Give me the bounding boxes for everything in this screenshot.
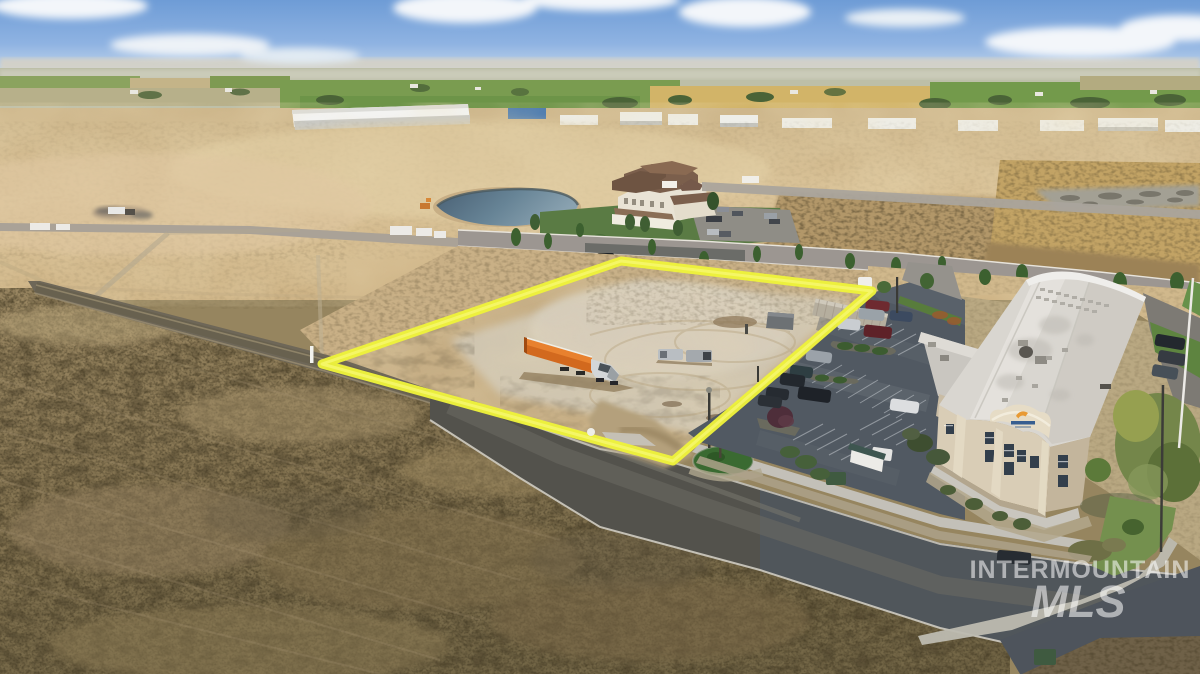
svg-text:MLS: MLS	[1031, 576, 1126, 627]
